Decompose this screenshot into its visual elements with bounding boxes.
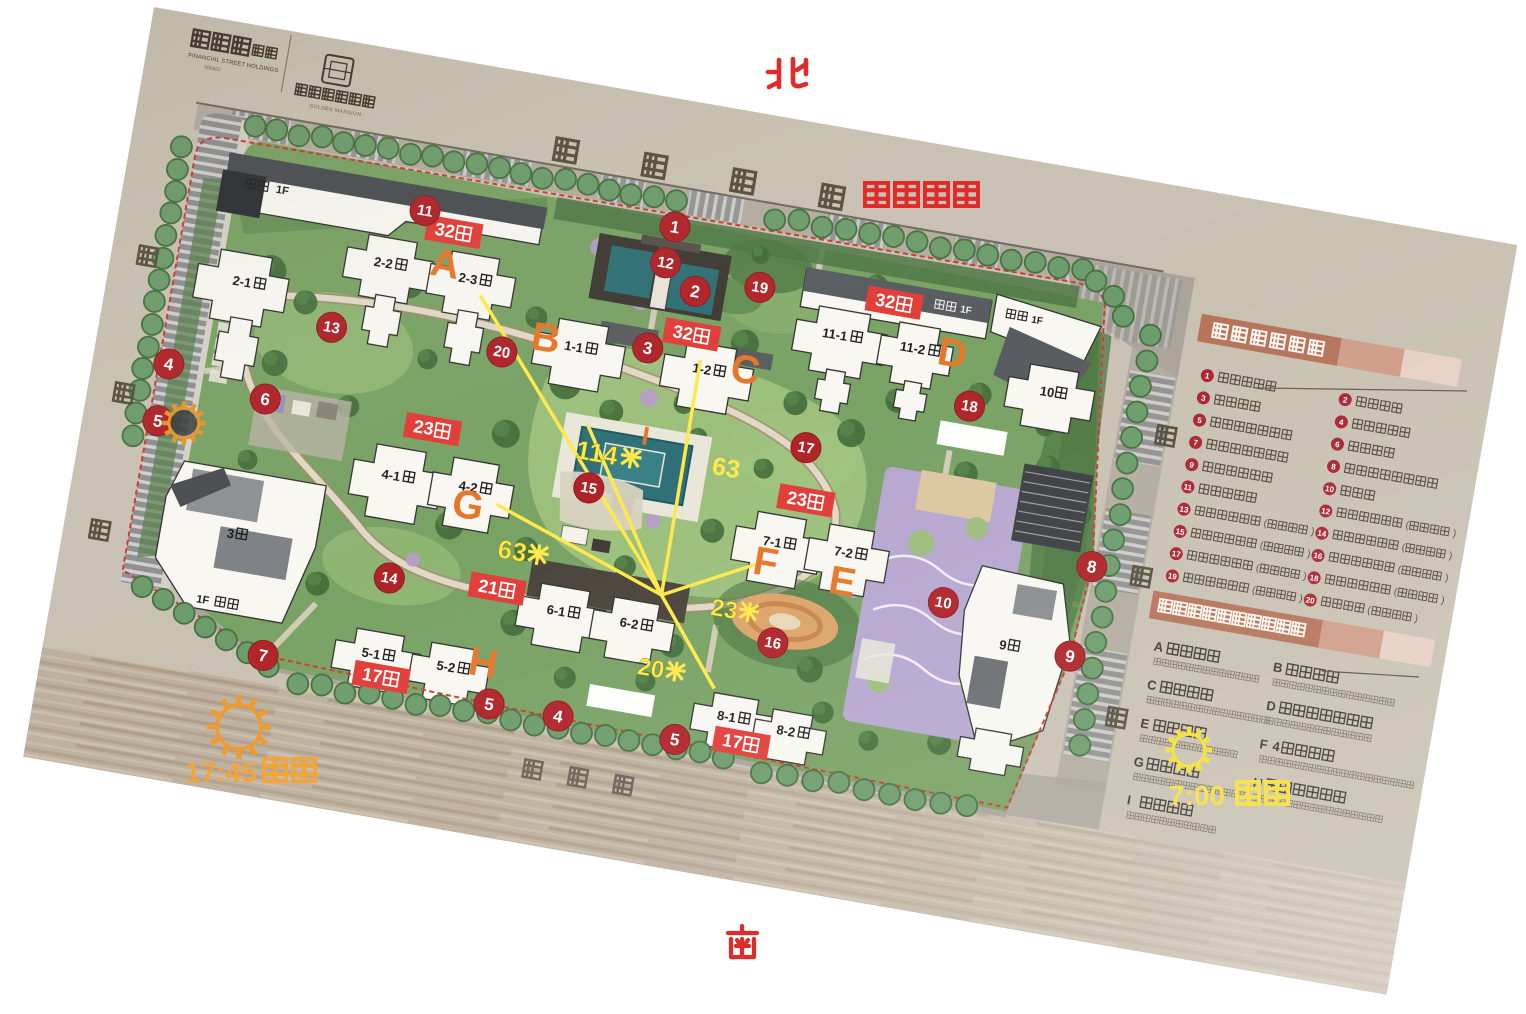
svg-text:7:00: 7:00 [1169, 780, 1225, 811]
svg-text:17:45: 17:45 [185, 757, 257, 788]
